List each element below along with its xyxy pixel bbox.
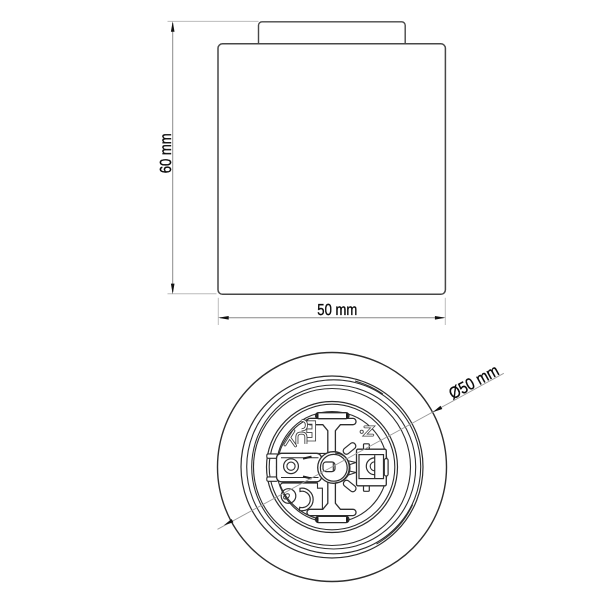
svg-text:50 mm: 50 mm [317, 302, 357, 319]
svg-text:60 mm: 60 mm [158, 133, 175, 173]
svg-text:Ø50 mm: Ø50 mm [446, 362, 502, 404]
